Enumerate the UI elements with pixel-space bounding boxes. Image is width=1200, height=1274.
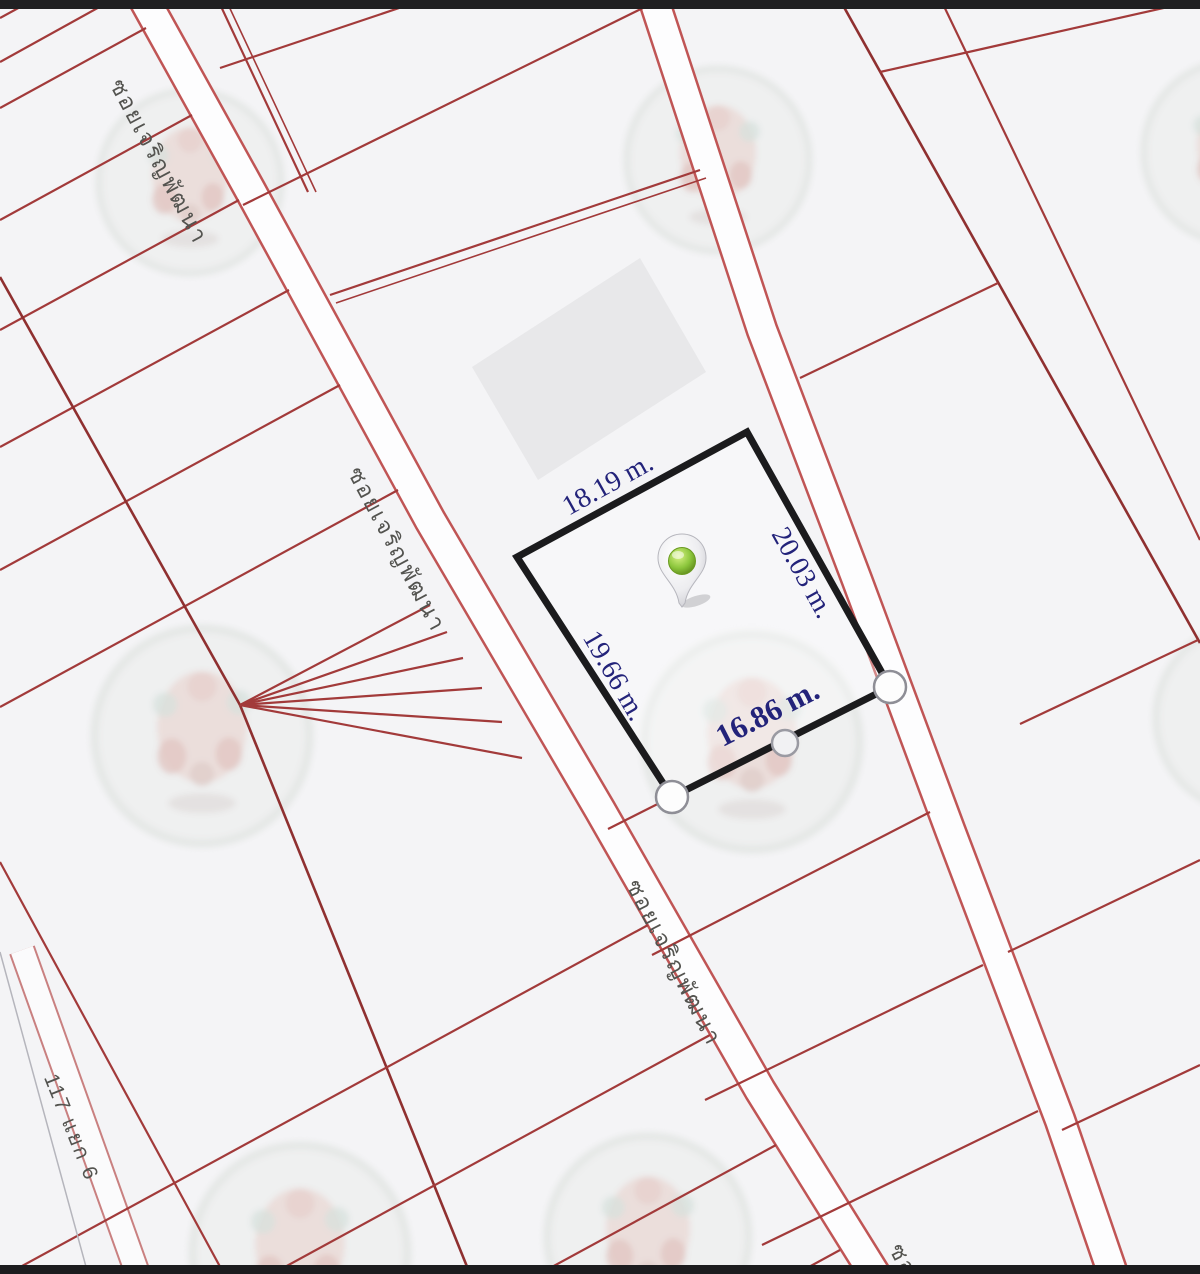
top-letterbox-bar — [0, 0, 1200, 9]
map-canvas[interactable]: 18.19 m. 20.03 m. 19.66 m. 16.86 m. ซอยเ… — [0, 0, 1200, 1274]
vertex-handle-bottom-left[interactable] — [656, 781, 688, 813]
map-pin-highlight — [672, 551, 684, 559]
cadastral-map[interactable]: 18.19 m. 20.03 m. 19.66 m. 16.86 m. ซอยเ… — [0, 0, 1200, 1274]
vertex-handle-bottom-mid[interactable] — [772, 730, 798, 756]
map-pin-dot — [669, 548, 696, 575]
bottom-letterbox-bar — [0, 1265, 1200, 1274]
vertex-handle-right[interactable] — [874, 671, 906, 703]
